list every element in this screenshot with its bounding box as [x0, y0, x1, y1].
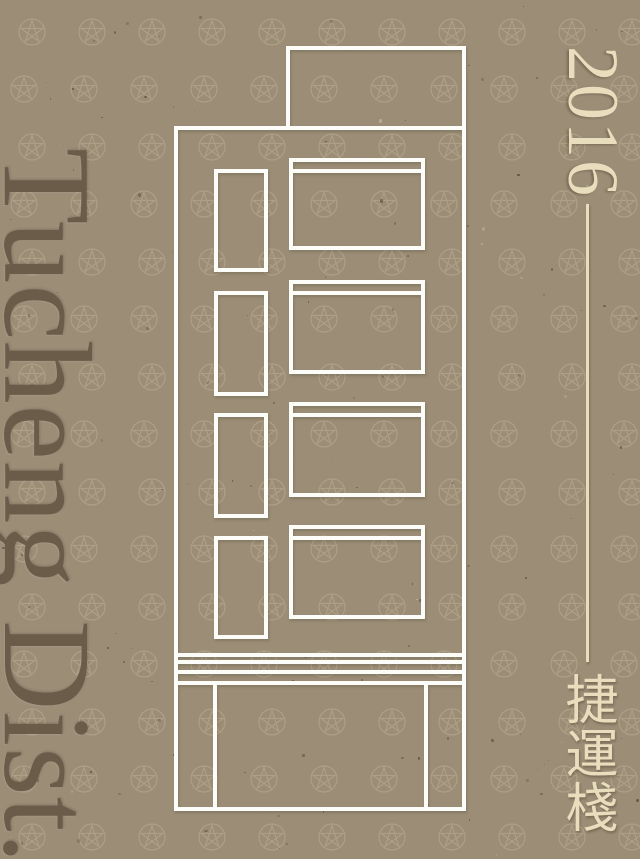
speck: [405, 120, 406, 121]
window-small-4: [216, 538, 266, 637]
speck: [596, 29, 598, 31]
speck: [408, 645, 410, 647]
speck: [353, 397, 355, 399]
speck: [620, 446, 622, 449]
speck: [379, 119, 382, 123]
speck: [158, 36, 160, 37]
speck: [361, 679, 363, 681]
speck: [123, 661, 125, 663]
speck: [536, 77, 538, 79]
speck: [199, 16, 202, 19]
speck: [138, 193, 141, 197]
speck: [50, 98, 52, 100]
speck: [325, 277, 326, 278]
speck: [60, 144, 61, 145]
speck: [46, 82, 47, 83]
speck: [353, 809, 356, 811]
district-title: Tucheng Dist.: [0, 148, 108, 859]
speck: [491, 739, 494, 742]
speck: [468, 65, 470, 66]
speck: [250, 485, 252, 487]
speck: [571, 518, 572, 519]
speck: [537, 769, 538, 770]
speck: [517, 174, 519, 177]
speck: [467, 225, 470, 228]
speck: [126, 22, 129, 26]
speck: [331, 461, 332, 462]
speck: [273, 402, 275, 404]
speck: [131, 648, 132, 649]
window-large-4: [291, 527, 423, 617]
speck: [496, 854, 497, 856]
penthouse-outline: [288, 48, 464, 128]
speck: [380, 199, 383, 202]
speck: [146, 327, 149, 330]
speck: [158, 719, 161, 722]
speck: [361, 280, 363, 281]
speck: [419, 599, 422, 602]
speck: [392, 308, 395, 311]
speck: [330, 20, 333, 23]
window-small-1: [216, 171, 266, 270]
speck: [356, 487, 358, 489]
speck: [544, 764, 545, 765]
speck: [114, 31, 117, 34]
speck: [72, 88, 75, 90]
speck: [482, 227, 485, 232]
speck: [481, 243, 483, 245]
speck: [469, 819, 470, 821]
speck: [286, 843, 288, 845]
speck: [151, 681, 153, 683]
speck: [173, 754, 175, 757]
speck: [93, 40, 95, 42]
speck: [407, 255, 409, 257]
speck: [543, 294, 546, 297]
window-large-1: [291, 160, 423, 248]
speck: [401, 757, 404, 759]
speck: [518, 374, 520, 377]
speck: [467, 565, 470, 567]
speck: [613, 474, 614, 475]
speck: [277, 815, 280, 817]
speck: [308, 301, 309, 303]
speck: [427, 804, 429, 806]
speck: [447, 737, 449, 740]
speck: [304, 655, 307, 658]
speck: [101, 117, 103, 118]
speck: [418, 757, 420, 760]
speck: [525, 577, 527, 579]
year-label: 2016: [557, 46, 629, 198]
speck: [394, 222, 396, 225]
poster-canvas: Tucheng Dist. 2016 捷運棧: [0, 0, 640, 859]
speck: [204, 830, 207, 832]
speck: [292, 680, 294, 681]
speck: [289, 581, 292, 584]
speck: [621, 738, 622, 739]
speck: [217, 387, 219, 389]
speck: [526, 779, 528, 782]
speck: [247, 315, 249, 316]
speck: [635, 317, 638, 321]
speck: [581, 310, 582, 311]
speck: [232, 480, 234, 481]
speck: [520, 277, 523, 279]
speck: [520, 734, 521, 735]
window-large-2: [291, 282, 423, 372]
speck: [188, 484, 189, 485]
speck: [416, 599, 417, 600]
speck: [481, 78, 484, 81]
speck: [161, 489, 163, 490]
speck: [279, 848, 280, 849]
speck: [540, 793, 543, 796]
speck: [118, 793, 121, 795]
speck: [172, 251, 173, 252]
speck: [345, 614, 346, 615]
speck: [206, 382, 209, 384]
speck: [173, 106, 174, 108]
speck: [399, 682, 402, 685]
speck: [523, 6, 525, 8]
speck: [325, 141, 327, 142]
facade-outline: [176, 128, 464, 809]
speck: [253, 530, 254, 531]
speck: [636, 799, 639, 802]
speck: [451, 482, 454, 485]
speck: [551, 268, 554, 272]
speck: [382, 375, 384, 377]
speck: [429, 598, 430, 599]
speck: [194, 104, 196, 105]
speck: [302, 754, 305, 757]
speck: [603, 305, 606, 307]
speck: [323, 811, 324, 813]
window-large-3: [291, 404, 423, 495]
cjk-title: 捷運棧: [560, 672, 613, 834]
window-small-2: [216, 293, 266, 394]
speck: [621, 31, 623, 33]
speck: [160, 257, 161, 259]
speck: [462, 786, 463, 787]
speck: [548, 760, 550, 761]
speck: [564, 395, 567, 398]
window-small-3: [216, 415, 266, 516]
speck: [412, 583, 413, 585]
speck: [244, 772, 245, 774]
vertical-divider-line: [586, 204, 589, 662]
speck: [359, 654, 360, 655]
speck: [144, 96, 146, 98]
